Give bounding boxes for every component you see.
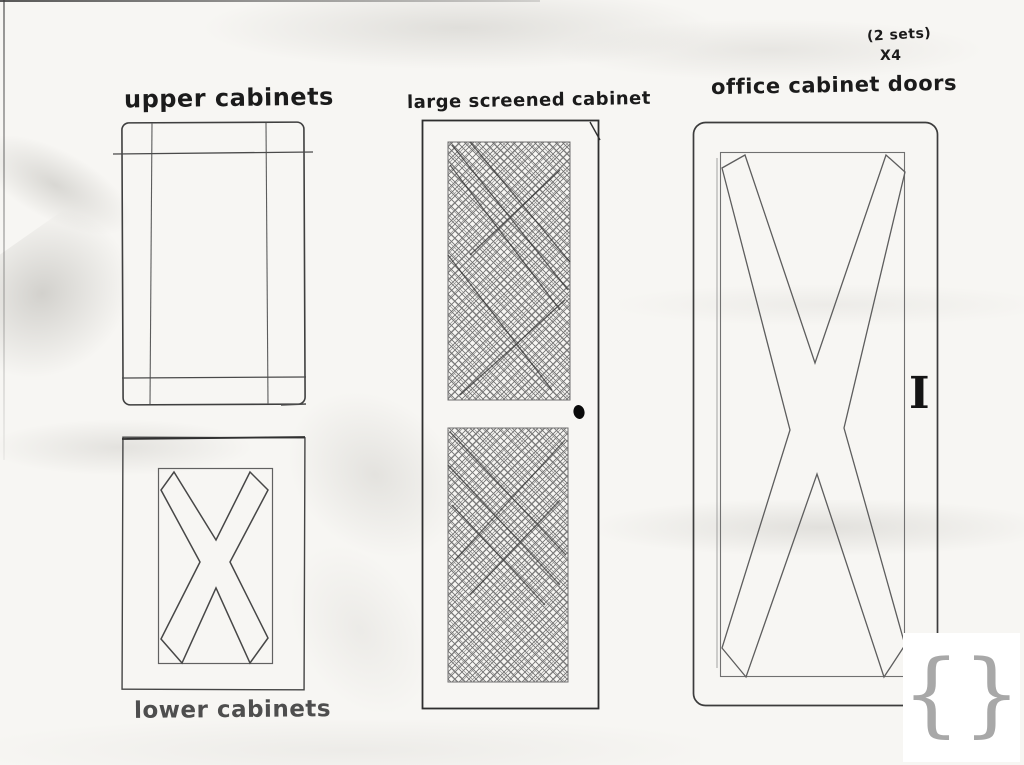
upper-cabinet-drawing: [113, 122, 313, 405]
dimension-mark: I: [909, 368, 930, 419]
label-office-cabinet-doors: office cabinet doors: [711, 71, 957, 99]
cabinet-drawings: [0, 0, 1024, 765]
lower-cabinet-drawing: [122, 437, 305, 690]
label-upper-cabinets: upper cabinets: [124, 83, 334, 114]
note-sets: (2 sets): [867, 25, 932, 44]
note-quantity: X4: [880, 48, 902, 64]
label-large-screened-cabinet: large screened cabinet: [407, 88, 651, 113]
right-brace: }: [963, 648, 1022, 740]
left-brace: {: [902, 648, 961, 740]
door-knob: [572, 404, 586, 420]
screened-cabinet-drawing: [423, 121, 601, 709]
brand-logo: { }: [903, 633, 1020, 762]
label-lower-cabinets: lower cabinets: [134, 696, 331, 724]
scanned-sketch-page: upper cabinets large screened cabinet of…: [0, 0, 1024, 765]
office-cabinet-drawing: [694, 123, 938, 706]
